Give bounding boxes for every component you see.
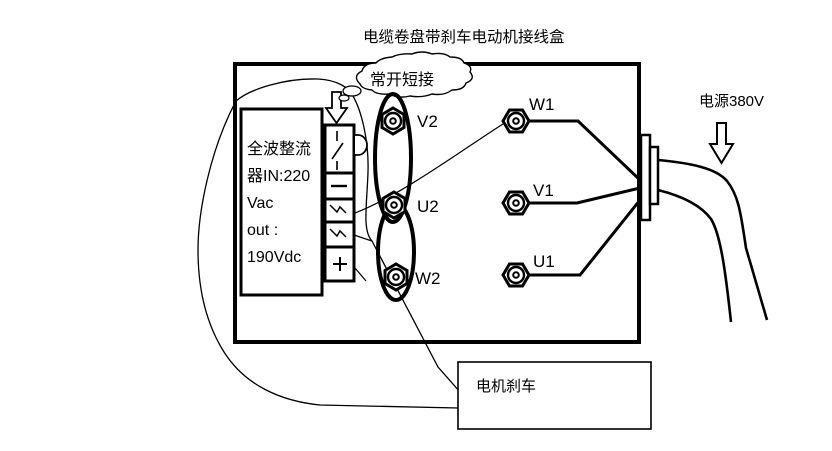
terminal-strip: [325, 125, 367, 281]
brake-wire-diagonal: [354, 235, 460, 392]
label-W1: W1: [529, 95, 555, 114]
callout-cloud: 常开短接: [339, 52, 472, 101]
power-down-arrow-icon: [710, 123, 733, 163]
plus-terminal-stub-wire: [355, 268, 366, 281]
terminal-bolt-V2: [382, 108, 404, 134]
cable-gland-outer: [641, 135, 650, 220]
rectifier-line-4: out :: [247, 222, 278, 239]
supply-cable-edge: [658, 160, 767, 320]
brake-label: 电机刹车: [476, 378, 536, 395]
terminal-bolt-W1: [503, 110, 529, 132]
terminal-bolt-U1: [503, 264, 529, 286]
label-W2: W2: [415, 269, 441, 288]
switch-cell-tab: [355, 135, 367, 155]
label-U1: U1: [533, 252, 555, 271]
rectifier-line-3: Vac: [247, 195, 273, 212]
cable-gland-inner: [650, 147, 658, 204]
wiring-diagram: 电缆卷盘带刹车电动机接线盒 全波整流 器IN:220 Vac out : 190…: [0, 0, 832, 451]
label-U2: U2: [417, 197, 439, 216]
terminal-bolt-W2: [385, 264, 407, 290]
rectifier-line-5: 190Vdc: [247, 249, 301, 266]
wire-W1: [529, 121, 640, 180]
label-V2: V2: [417, 112, 438, 131]
terminal-bolt-U2: [383, 192, 405, 218]
label-V1: V1: [533, 181, 554, 200]
supply-cable-edge: [658, 190, 731, 322]
strip-cell-ac1: [325, 199, 354, 222]
page-title: 电缆卷盘带刹车电动机接线盒: [363, 27, 565, 46]
strip-cell-ac2: [325, 222, 354, 247]
callout-text: 常开短接: [370, 71, 434, 89]
rectifier-line-2: 器IN:220: [247, 167, 310, 185]
brake-box: [458, 362, 651, 429]
power-label: 电源380V: [699, 93, 764, 110]
terminal-bolt-V1: [503, 192, 529, 214]
cloud-tail-puff: [339, 95, 349, 101]
cloud-tail-puff: [343, 86, 361, 96]
rectifier-line-1: 全波整流: [247, 140, 311, 158]
